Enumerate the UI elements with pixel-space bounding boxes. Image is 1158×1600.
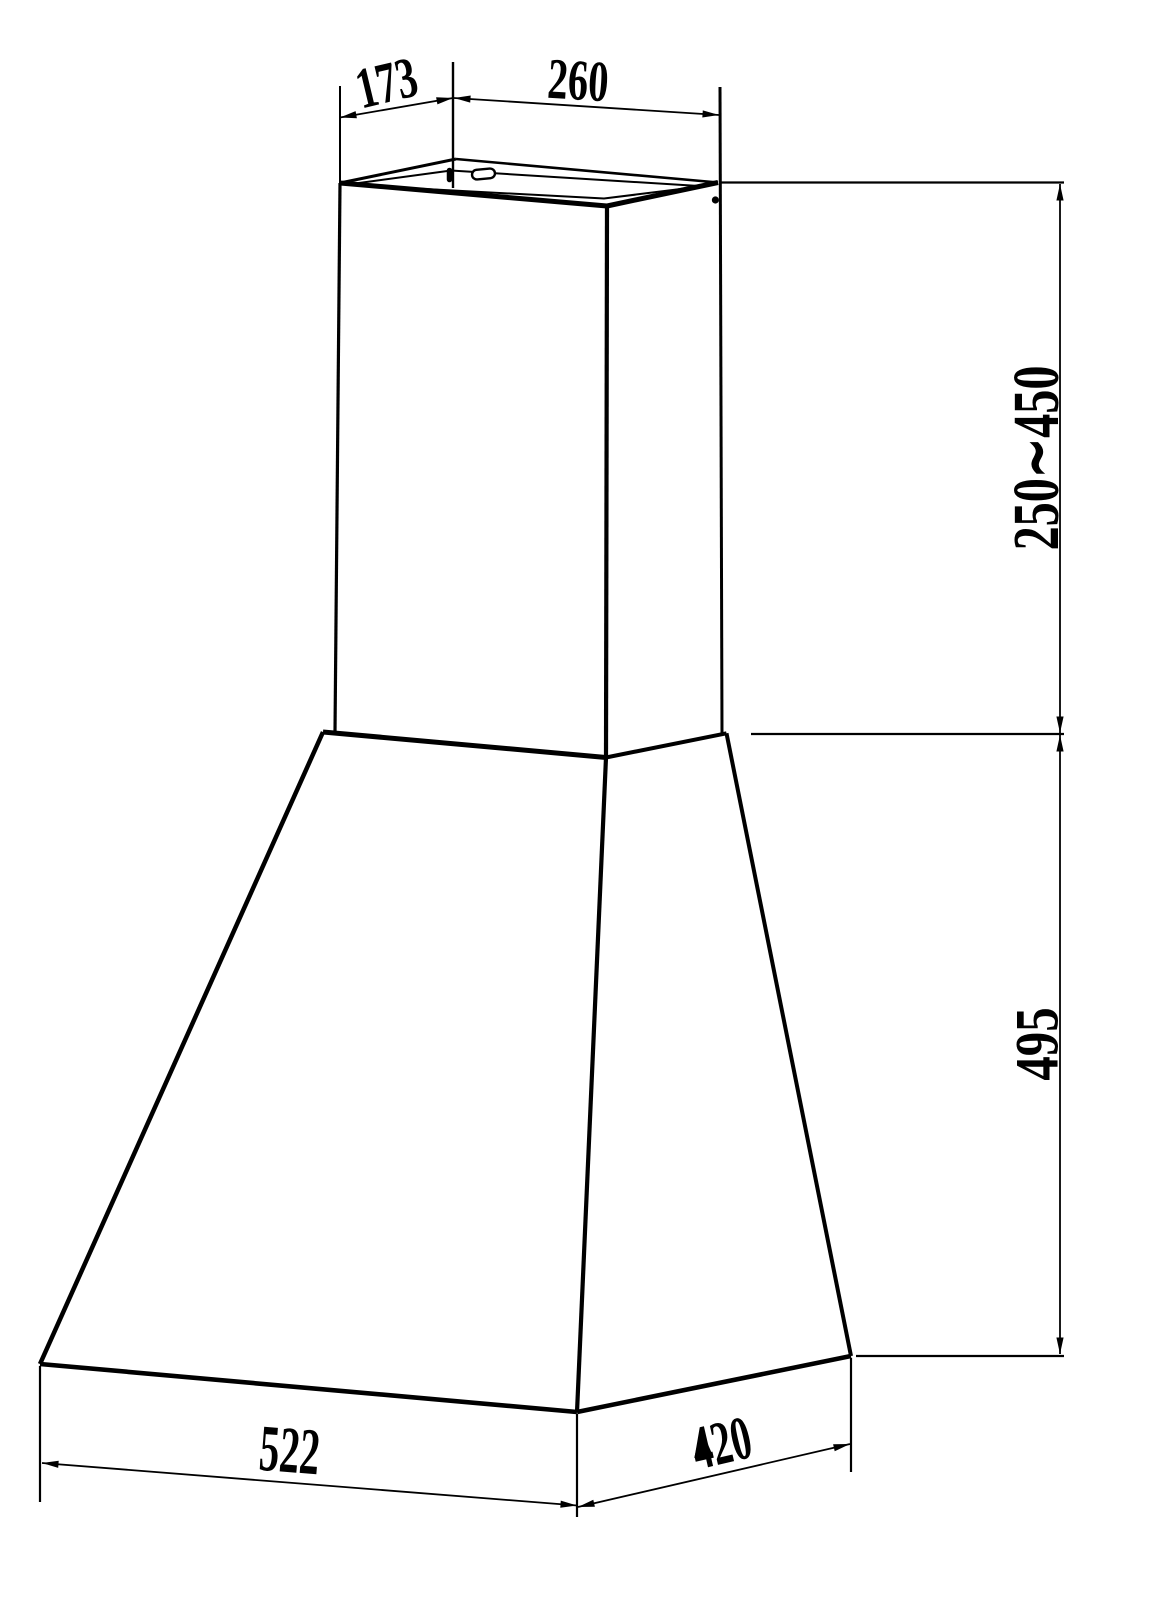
svg-text:495: 495 — [1003, 1007, 1070, 1080]
svg-text:522: 522 — [257, 1411, 323, 1489]
svg-text:260: 260 — [546, 46, 611, 114]
svg-text:250∼450: 250∼450 — [1001, 366, 1073, 551]
